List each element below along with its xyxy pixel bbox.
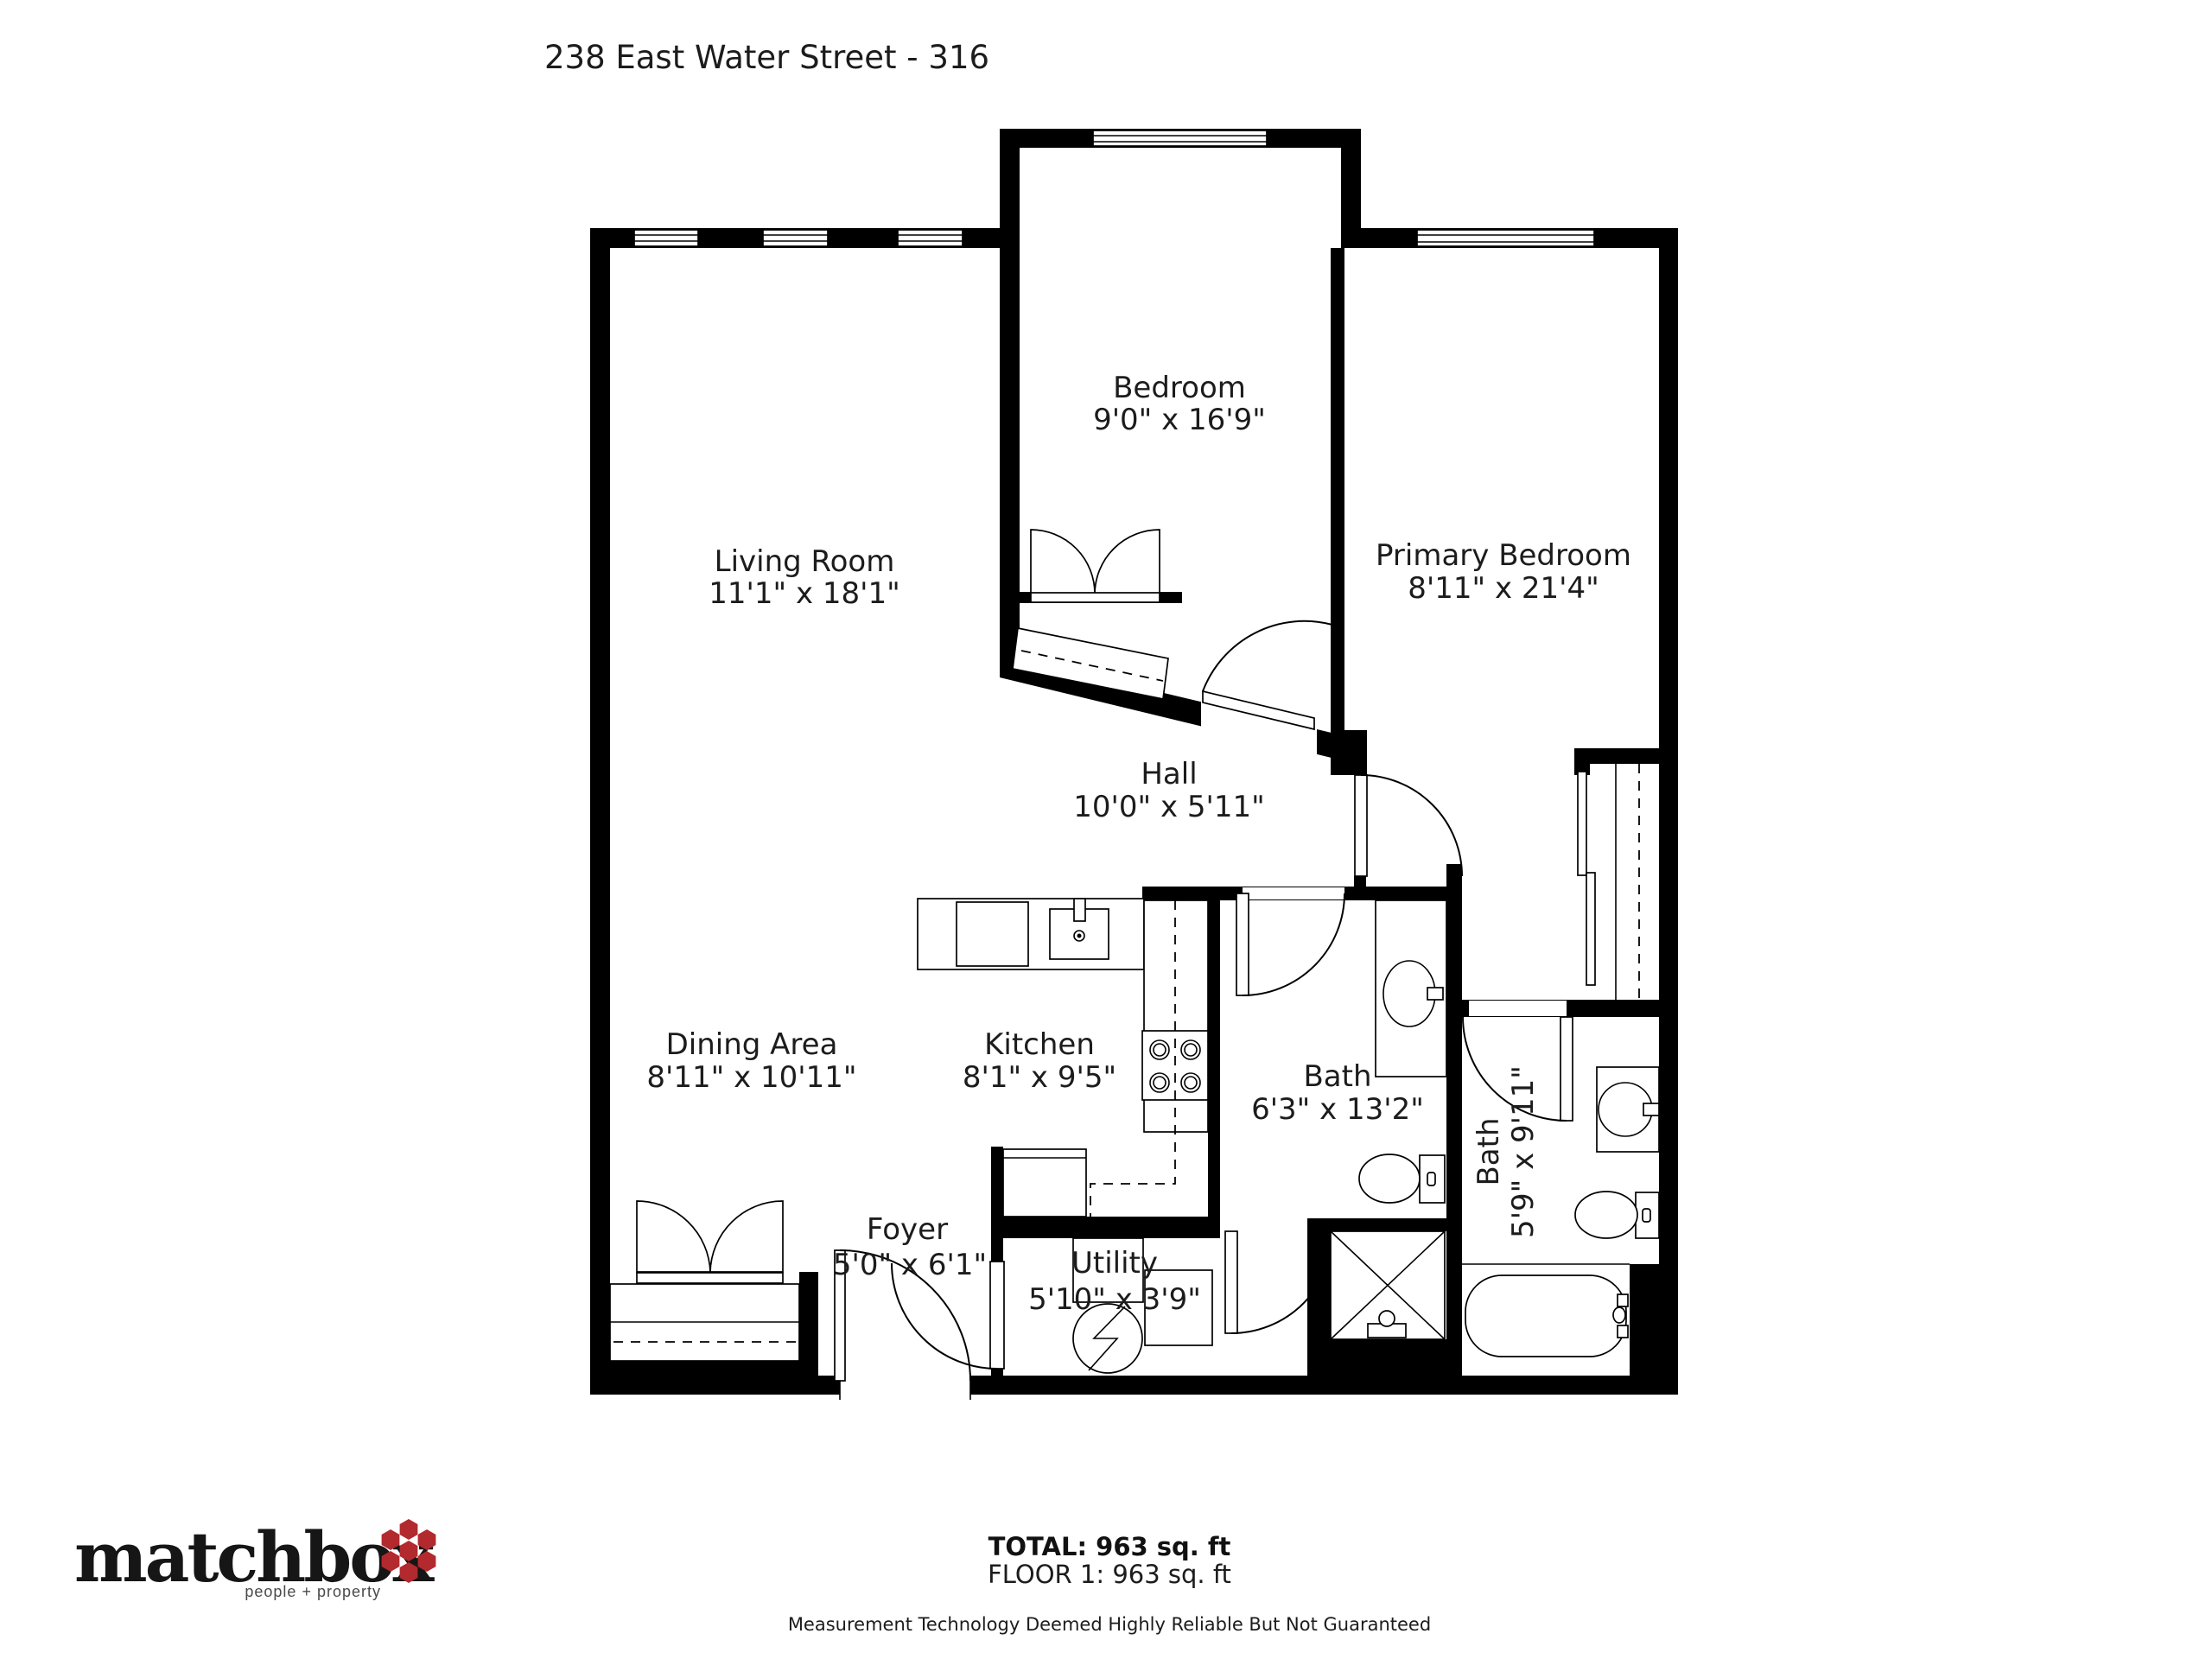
bath-toilet	[1359, 1154, 1445, 1203]
page-title: 238 East Water Street - 316	[544, 39, 989, 76]
room-label-living-room: Living Room 11'1" x 18'1"	[709, 544, 900, 611]
page-background	[0, 0, 2212, 1659]
room-name: Dining Area	[666, 1027, 838, 1062]
counter	[918, 899, 1144, 969]
room-name: Bath	[1471, 1117, 1506, 1185]
room-dims: 10'0" x 5'11"	[1073, 790, 1265, 824]
room-dims: 5'9" x 9'11"	[1506, 1065, 1541, 1238]
room-dims: 5'10" x 3'9"	[1028, 1282, 1201, 1317]
footer-disclaimer: Measurement Technology Deemed Highly Rel…	[788, 1614, 1431, 1635]
room-dims: 8'1" x 9'5"	[963, 1060, 1116, 1095]
room-dims: 8'11" x 10'11"	[646, 1060, 856, 1095]
room-dims: 9'0" x 16'9"	[1093, 403, 1266, 437]
room-name: Bath	[1303, 1059, 1371, 1094]
room-name: Kitchen	[984, 1027, 1095, 1062]
fridge	[957, 902, 1028, 966]
shower	[1331, 1231, 1445, 1339]
window-primary-bedroom	[1417, 230, 1594, 246]
sliding-door-panel	[1586, 873, 1595, 985]
room-name: Living Room	[715, 544, 895, 579]
room-label-dining-area: Dining Area 8'11" x 10'11"	[646, 1027, 856, 1095]
room-label-primary-bedroom: Primary Bedroom 8'11" x 21'4"	[1376, 538, 1631, 606]
window-living-3	[898, 230, 963, 246]
logo: matchbox people + property	[74, 1516, 435, 1600]
logo-tagline: people + property	[245, 1583, 381, 1600]
room-dims: 8'11" x 21'4"	[1408, 571, 1599, 606]
room-name: Hall	[1141, 757, 1197, 791]
room-name: Foyer	[867, 1212, 948, 1247]
footer-floor: FLOOR 1: 963 sq. ft	[988, 1560, 1231, 1589]
window-bedroom	[1093, 130, 1267, 146]
room-label-bedroom: Bedroom 9'0" x 16'9"	[1093, 371, 1266, 437]
bath-vanity	[1376, 900, 1446, 1077]
room-dims: 5'0" x 6'1"	[833, 1248, 987, 1282]
room-dims: 11'1" x 18'1"	[709, 576, 900, 611]
room-dims: 6'3" x 13'2"	[1251, 1092, 1424, 1127]
sliding-door-panel	[1578, 772, 1586, 875]
room-name: Bedroom	[1113, 371, 1246, 405]
lower-counter	[1003, 1149, 1086, 1217]
room-name: Primary Bedroom	[1376, 538, 1631, 573]
primary-bath-vanity	[1597, 1067, 1659, 1152]
window-living-1	[634, 230, 698, 246]
room-label-kitchen: Kitchen 8'1" x 9'5"	[963, 1027, 1116, 1095]
primary-bath-toilet	[1575, 1192, 1659, 1238]
bathtub	[1465, 1275, 1628, 1357]
floor-plan: 238 East Water Street - 316	[0, 0, 2212, 1659]
room-name: Utility	[1071, 1246, 1158, 1281]
window-living-2	[763, 230, 828, 246]
footer-total: TOTAL: 963 sq. ft	[988, 1532, 1231, 1561]
